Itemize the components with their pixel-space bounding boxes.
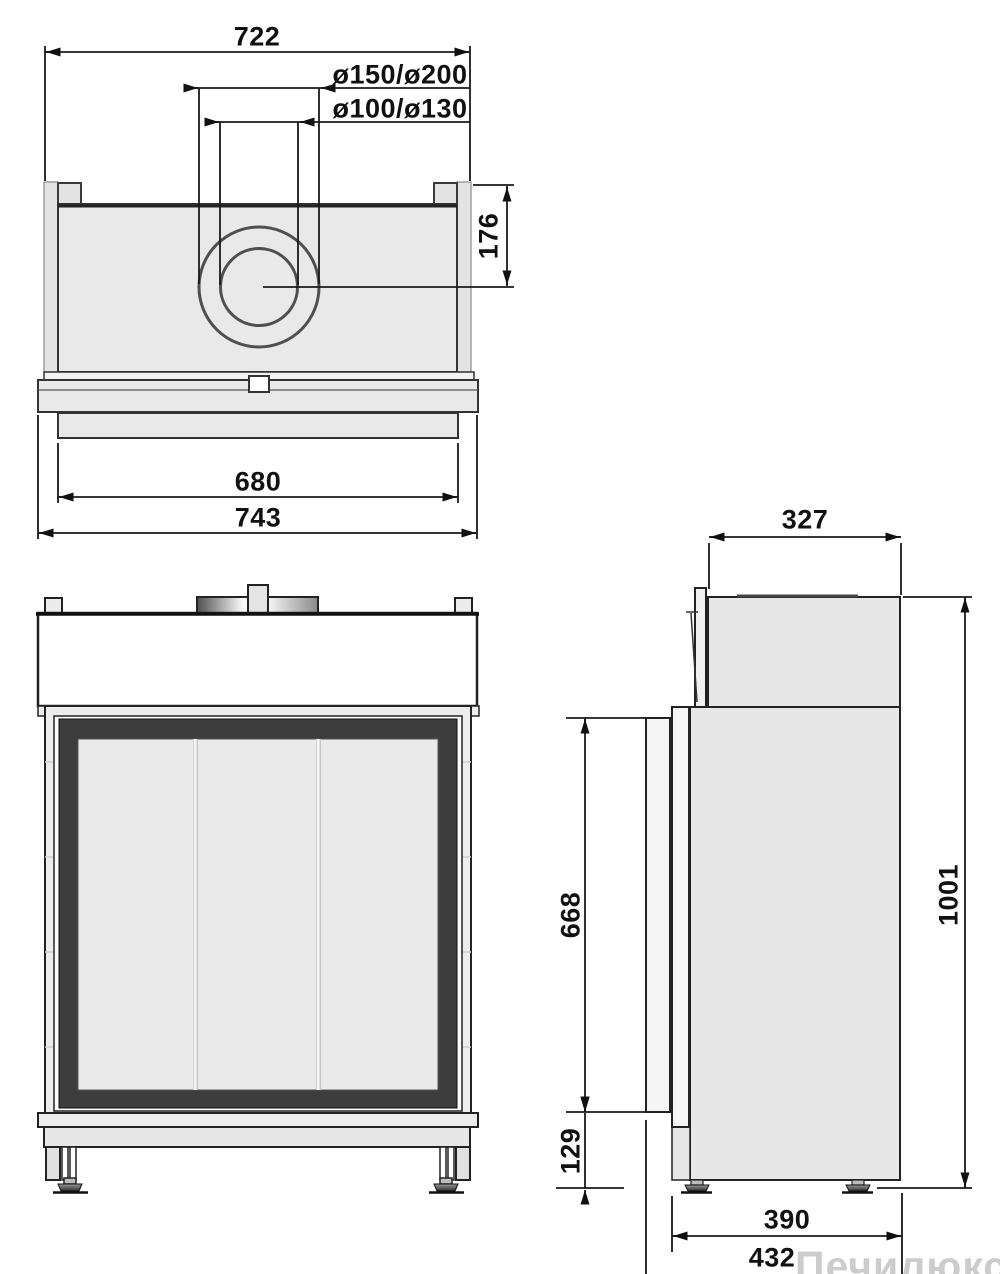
plenum-box — [38, 613, 477, 706]
top-view — [38, 182, 478, 438]
left-leg-inner — [62, 1147, 68, 1180]
fireplace-technical-drawing: 722 ø150/ø200 ø100/ø130 176 680 743 327 … — [0, 0, 1000, 1274]
drawing-linework — [0, 0, 1000, 1274]
top-view-damper-latch — [249, 376, 269, 392]
right-leg-inner — [440, 1147, 446, 1180]
side-body-step — [672, 1127, 690, 1180]
top-view-right-tab — [434, 183, 457, 204]
dim-label-176: 176 — [474, 213, 505, 260]
side-frame-strip — [646, 718, 670, 1112]
front-right-tab — [455, 598, 472, 613]
left-leg-outer — [46, 1147, 60, 1180]
dim-label-327: 327 — [782, 505, 829, 536]
left-leg-inner — [70, 1147, 76, 1180]
dim-label-1001: 1001 — [934, 864, 965, 926]
right-leg-inner — [448, 1147, 454, 1180]
glass-panel — [78, 739, 438, 1090]
side-front-foot — [681, 1180, 712, 1193]
glass-divider-right — [316, 739, 321, 1090]
front-left-tab — [45, 598, 62, 613]
top-view-left-tab — [58, 183, 81, 204]
dim-label-flue-inner: ø100/ø130 — [332, 94, 467, 125]
base-strip — [44, 1127, 470, 1147]
dim-label-432: 432 — [749, 1243, 796, 1274]
dim-label-722: 722 — [234, 22, 281, 53]
top-view-left-wall — [44, 182, 58, 372]
dim-label-129: 129 — [556, 1128, 587, 1175]
dim-label-flue-outer: ø150/ø200 — [332, 60, 467, 91]
top-view-door-panel — [58, 413, 458, 438]
side-door-strip — [672, 707, 689, 1127]
dim-label-668: 668 — [556, 892, 587, 939]
front-view — [36, 585, 479, 1193]
side-body-top — [708, 597, 900, 709]
dim-label-680: 680 — [235, 467, 282, 498]
right-leg-outer — [456, 1147, 470, 1180]
side-view — [646, 588, 900, 1193]
frame-step-right — [471, 706, 479, 716]
dim-label-390: 390 — [764, 1205, 811, 1236]
glass-divider-left — [193, 739, 198, 1090]
watermark: Печилюкс.ру — [795, 1243, 1000, 1274]
dim-label-743: 743 — [235, 503, 282, 534]
side-body — [690, 707, 900, 1180]
top-view-right-wall — [457, 182, 471, 372]
bottom-band — [38, 1113, 478, 1127]
side-rear-foot — [842, 1180, 873, 1193]
